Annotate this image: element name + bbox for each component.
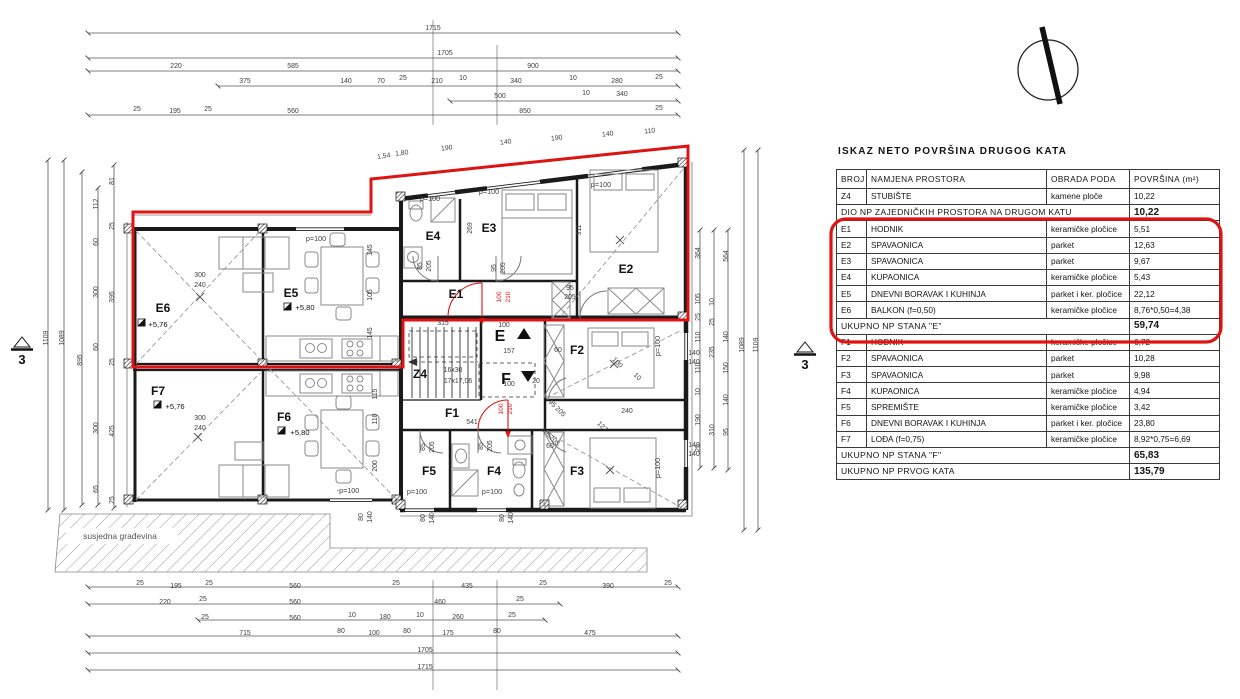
dimension-label: 1715 xyxy=(425,25,440,32)
cell-obrada: keramičke pločice xyxy=(1047,383,1130,399)
dimension-label: 85 xyxy=(478,442,485,450)
cell-namjena: HODNIK xyxy=(867,221,1047,237)
dimension-tick xyxy=(46,158,51,163)
room-label: E6 xyxy=(156,301,171,315)
dimension-label: 10 xyxy=(459,75,467,82)
cell-obrada: keramičke pločice xyxy=(1047,431,1130,447)
dimension-label: 435 xyxy=(461,583,473,590)
cell-namjena: BALKON (f=0,50) xyxy=(867,302,1047,318)
dimension-tick xyxy=(742,148,747,153)
dimension-label: 60 xyxy=(546,443,554,450)
dimension-label: 10 xyxy=(569,75,577,82)
wall-pillar xyxy=(396,500,405,509)
dimension-label: 205 xyxy=(554,405,567,418)
dimension-label: 195 xyxy=(169,108,181,115)
cell-broj: F3 xyxy=(837,367,867,383)
dimension-tick xyxy=(196,618,201,623)
dimension-label: 140 xyxy=(688,359,700,366)
dimension-label: 95 xyxy=(547,399,557,409)
cell-povrsina: 65,83 xyxy=(1130,448,1220,464)
dimension-tick xyxy=(80,503,85,508)
cell-namjena: DNEVNI BORAVAK I KUHINJA xyxy=(867,286,1047,302)
dimension-tick xyxy=(676,31,681,36)
dimension-label: 541 xyxy=(466,419,478,426)
cell-broj: E6 xyxy=(837,302,867,318)
room-label: F5 xyxy=(422,464,436,478)
dimension-label: 110 xyxy=(644,127,656,135)
dimension-label: 375 xyxy=(239,78,251,85)
cell-obrada: keramičke pločice xyxy=(1047,399,1130,415)
door-size-label: 210 xyxy=(507,403,514,414)
dimension-label: 110 xyxy=(695,331,702,342)
dimension-label: 10 xyxy=(348,612,356,619)
dimension-label: 200 xyxy=(372,460,379,472)
cell-obrada: keramičke pločice xyxy=(1047,302,1130,318)
cell-obrada: parket xyxy=(1047,350,1130,366)
dimension-tick xyxy=(86,634,91,639)
table-row: E5DNEVNI BORAVAK I KUHINJAparket i ker. … xyxy=(837,286,1220,302)
dimension-label: 240 xyxy=(621,408,633,415)
dimension-label: 20 xyxy=(532,378,540,385)
dimension-label: 460 xyxy=(434,599,446,606)
cell-broj: E3 xyxy=(837,253,867,269)
cell-povrsina: 9,98 xyxy=(1130,367,1220,383)
dimension-label: 260 xyxy=(452,614,464,621)
dimension-label: 17x17,06 xyxy=(444,378,473,385)
dimension-label: 25 xyxy=(709,318,716,326)
apartment-entry-label: E xyxy=(495,328,506,345)
dimension-tick xyxy=(86,585,91,590)
table-row: E4KUPAONICAkeramičke pločice5,43 xyxy=(837,269,1220,285)
wall-pillar xyxy=(678,158,687,167)
floor-finish-label: -p=100 xyxy=(337,486,360,495)
dimension-label: 190 xyxy=(551,134,563,142)
wall-pillar xyxy=(678,312,687,321)
roof-eave-lines xyxy=(127,147,692,516)
dimension-label: 1109 xyxy=(753,337,760,352)
room-label: F4 xyxy=(487,464,501,478)
cell-namjena: DIO NP ZAJEDNIČKIH PROSTORA NA DRUGOM KA… xyxy=(837,205,1130,221)
dimension-tick xyxy=(726,468,731,473)
dimension-label: 205 xyxy=(487,440,494,452)
dimension-label: 1109 xyxy=(43,330,50,345)
dimension-label: 85 xyxy=(417,262,424,270)
cell-broj: E2 xyxy=(837,237,867,253)
dimension-label: 180 xyxy=(379,614,391,621)
dimension-label: 105 xyxy=(540,426,553,439)
dimension-label: 560 xyxy=(287,108,299,115)
dimension-label: 16x30 xyxy=(444,367,463,374)
walls xyxy=(133,164,686,510)
cell-obrada: parket i ker. pločice xyxy=(1047,415,1130,431)
dimension-label: 220 xyxy=(159,599,171,606)
cell-obrada: keramičke pločice xyxy=(1047,334,1130,350)
dimension-label: 100 xyxy=(611,356,624,369)
dimension-label: 100 xyxy=(498,322,510,329)
dimension-label: 140 xyxy=(429,512,436,524)
room-label: E4 xyxy=(426,229,441,243)
dimension-label: 110 xyxy=(372,413,379,424)
dimension-label: 95 xyxy=(566,285,574,292)
dimension-tick xyxy=(46,508,51,513)
cell-povrsina: 3,42 xyxy=(1130,399,1220,415)
dimension-label: 25 xyxy=(695,313,702,321)
dimension-label: 80 xyxy=(337,628,345,635)
dimension-label: 475 xyxy=(584,630,596,637)
cell-povrsina: 5,51 xyxy=(1130,221,1220,237)
dimension-label: 300 xyxy=(194,415,206,422)
entry-door-f-red xyxy=(478,400,511,438)
col-povrsina: POVRŠINA (m²) xyxy=(1130,170,1220,189)
floor-finish-label: p=100 xyxy=(420,194,440,203)
dimension-label: 205 xyxy=(548,434,561,447)
cell-povrsina: 10,22 xyxy=(1130,189,1220,205)
cell-namjena: HODNIK xyxy=(867,334,1047,350)
dimension-label: 115 xyxy=(372,388,379,399)
door-size-label: 100 xyxy=(498,403,505,414)
dimension-label: 25 xyxy=(109,222,116,230)
dimension-label: 1,54 xyxy=(377,152,391,161)
dimension-label: 850 xyxy=(519,108,531,115)
section-marker-left xyxy=(11,337,33,350)
dimension-tick xyxy=(712,466,717,471)
dimension-label: 95 xyxy=(491,264,498,272)
dimension-label: 140 xyxy=(688,442,700,449)
col-obrada: OBRADA PODA xyxy=(1047,170,1130,189)
floor-finish-label: p=100 xyxy=(653,458,662,478)
dimension-label: 25 xyxy=(508,612,516,619)
dimension-label: 340 xyxy=(616,91,628,98)
dimension-tick xyxy=(676,634,681,639)
plan-labels: E6E5E4E3E2E1Z4F1F2F3F4F5F6F7EF+5,76+5,80… xyxy=(18,25,808,671)
elevation-label: +5,80 xyxy=(290,428,309,437)
dimension-label: 140 xyxy=(340,78,352,85)
neighbor-building xyxy=(55,514,647,572)
dimension-tick xyxy=(448,99,453,104)
dimension-label: 190 xyxy=(441,144,453,152)
col-namjena: NAMJENA PROSTORA xyxy=(867,170,1047,189)
cell-obrada: keramičke pločice xyxy=(1047,221,1130,237)
dimension-label: 80 xyxy=(493,628,501,635)
dimension-tick xyxy=(96,503,101,508)
dimension-label: 564 xyxy=(723,250,730,262)
dimension-tick xyxy=(543,618,548,623)
dimension-tick xyxy=(86,56,91,61)
dimension-label: 895 xyxy=(77,354,84,366)
dimension-label: 10 xyxy=(582,90,590,97)
dimension-label: 300 xyxy=(93,286,100,298)
dimension-label: 80 xyxy=(358,513,365,521)
dimension-label: 900 xyxy=(527,63,539,70)
dimension-label: 105 xyxy=(695,293,702,305)
table-row: Z4STUBIŠTEkamene ploče10,22 xyxy=(837,189,1220,205)
dimension-label: 500 xyxy=(494,93,506,100)
dimension-label: 10 xyxy=(416,612,424,619)
dimension-label: 145 xyxy=(367,327,374,339)
ceiling-diagonals xyxy=(136,168,684,508)
dimension-tick xyxy=(676,668,681,673)
dimension-tick xyxy=(676,113,681,118)
dimension-label: 205 xyxy=(564,294,576,301)
highlight-apartment-e xyxy=(133,146,688,438)
dimension-label: 280 xyxy=(611,78,623,85)
dimension-label: 269 xyxy=(467,222,474,234)
dimension-label: 95 xyxy=(723,428,730,436)
dimension-label: 25 xyxy=(109,496,116,504)
dimension-label: 25 xyxy=(655,105,663,112)
wall-pillars xyxy=(124,158,687,509)
dimension-tick xyxy=(86,69,91,74)
col-broj: BROJ xyxy=(837,170,867,189)
table-row: F1HODNIKkeramičke pločice6,72 xyxy=(837,334,1220,350)
dimension-label: 100 xyxy=(368,630,380,637)
dimension-label: 80 xyxy=(420,514,427,522)
dimension-label: 70 xyxy=(377,78,385,85)
dimension-label: 1705 xyxy=(437,50,452,57)
wall-pillar xyxy=(392,495,401,504)
dimension-label: 140 xyxy=(688,451,700,458)
cell-namjena: LOĐA (f=0,75) xyxy=(867,431,1047,447)
room-label: E3 xyxy=(482,221,497,235)
section-number: 3 xyxy=(801,357,808,372)
dimension-tick xyxy=(112,506,117,511)
dimension-label: 100 xyxy=(503,381,515,388)
cell-broj: E1 xyxy=(837,221,867,237)
room-label: E5 xyxy=(284,286,299,300)
cell-broj: F1 xyxy=(837,334,867,350)
dimension-tick xyxy=(86,668,91,673)
cell-broj: F6 xyxy=(837,415,867,431)
dimension-tick xyxy=(698,466,703,471)
door-size-label: 100 xyxy=(496,291,503,302)
dimension-label: 25 xyxy=(399,75,407,82)
dimension-label: 10 xyxy=(632,372,642,382)
cell-povrsina: 10,28 xyxy=(1130,350,1220,366)
cell-obrada: parket xyxy=(1047,237,1130,253)
dimension-tick xyxy=(756,528,761,533)
elevation-markers xyxy=(138,303,291,434)
dimension-label: 25 xyxy=(655,74,663,81)
dimension-label: 10 xyxy=(695,388,702,396)
dimension-label: 425 xyxy=(109,425,116,437)
cell-povrsina: 22,12 xyxy=(1130,286,1220,302)
cell-namjena: KUPAONICA xyxy=(867,269,1047,285)
dimension-label: 560 xyxy=(289,583,301,590)
dimension-label: 310 xyxy=(709,424,716,436)
dimension-label: 1,80 xyxy=(395,149,409,158)
room-label: F1 xyxy=(445,406,459,420)
dimension-label: 25 xyxy=(664,580,672,587)
table-row: E3SPAVAONICAparket9,67 xyxy=(837,253,1220,269)
dimension-tick xyxy=(112,163,117,168)
dimension-label: 25 xyxy=(133,106,141,113)
cell-povrsina: 10,22 xyxy=(1130,205,1220,221)
dimension-label: 80 xyxy=(403,628,411,635)
table-title: ISKAZ NETO POVRŠINA DRUGOG KATA xyxy=(838,146,1219,157)
staircase xyxy=(408,327,535,398)
cell-broj: F5 xyxy=(837,399,867,415)
dimension-tick xyxy=(712,228,717,233)
wall-pillar xyxy=(124,359,133,368)
entry-door-e-red xyxy=(448,283,485,325)
cell-namjena: SPAVAONICA xyxy=(867,253,1047,269)
wall-pillar xyxy=(258,224,267,233)
cell-povrsina: 6,72 xyxy=(1130,334,1220,350)
wall-pillar xyxy=(124,495,133,504)
dimension-label: 140 xyxy=(508,512,515,524)
table-row: E2SPAVAONICAparket12,63 xyxy=(837,237,1220,253)
dimension-label: 1715 xyxy=(417,664,432,671)
dimension-tick xyxy=(86,651,91,656)
dimension-label: 112 xyxy=(93,198,100,209)
dimension-label: 311 xyxy=(576,224,583,235)
dimension-label: 140 xyxy=(723,394,730,406)
floor-finish-label: p=100 xyxy=(306,234,326,243)
dimension-label: 560 xyxy=(289,615,301,622)
room-label: E2 xyxy=(619,262,634,276)
dimension-tick xyxy=(676,651,681,656)
wall-pillar xyxy=(678,500,687,509)
cell-namjena: STUBIŠTE xyxy=(867,189,1047,205)
dimension-label: 60 xyxy=(93,343,100,351)
section-marker-right xyxy=(794,342,816,355)
dimension-label: 240 xyxy=(194,282,206,289)
table-row: F3SPAVAONICAparket9,98 xyxy=(837,367,1220,383)
dimension-tick xyxy=(756,148,761,153)
section-number: 3 xyxy=(18,352,25,367)
floor-plan-sheet: ISKAZ NETO POVRŠINA DRUGOG KATA BROJ NAM… xyxy=(0,0,1240,699)
dimension-label: 140 xyxy=(688,350,700,357)
cell-broj: F4 xyxy=(837,383,867,399)
table-row: UKUPNO NP STANA "E"59,74 xyxy=(837,318,1220,334)
table-header-row: BROJ NAMJENA PROSTORA OBRADA PODA POVRŠI… xyxy=(837,170,1220,189)
room-label: Z4 xyxy=(413,367,427,381)
table-row: F6DNEVNI BORAVAK I KUHINJAparket i ker. … xyxy=(837,415,1220,431)
dimension-label: 1705 xyxy=(417,647,432,654)
cell-obrada: parket xyxy=(1047,253,1130,269)
dimension-label: 364 xyxy=(695,247,702,259)
dimension-label: 60 xyxy=(554,347,562,354)
dimension-label: 10 xyxy=(709,298,716,306)
dimension-label: 25 xyxy=(539,580,547,587)
dimension-tick xyxy=(742,528,747,533)
entry-markers xyxy=(517,328,535,382)
dimension-label: 315 xyxy=(437,320,449,327)
dimension-label: 25 xyxy=(204,106,212,113)
cell-namjena: DNEVNI BORAVAK I KUHINJA xyxy=(867,415,1047,431)
neighbor-note: susjedna građevina xyxy=(83,531,157,541)
wall-pillar xyxy=(258,359,267,368)
dimension-label: 105 xyxy=(367,289,374,301)
dimension-lines xyxy=(46,20,761,690)
table-row: UKUPNO NP PRVOG KATA135,79 xyxy=(837,464,1220,480)
dimension-label: 85 xyxy=(420,443,427,451)
apartment-entry-label: F xyxy=(501,371,511,388)
dimension-label: 150 xyxy=(723,362,730,374)
dimension-tick xyxy=(86,31,91,36)
dimension-label: 1089 xyxy=(59,330,66,345)
dimension-tick xyxy=(676,99,681,104)
dimension-label: 205 xyxy=(426,260,433,272)
elevation-label: +5,80 xyxy=(295,303,314,312)
floor-finish-label: p=100 xyxy=(591,180,611,189)
dimension-label: 140 xyxy=(500,138,512,146)
dimension-label: 81 xyxy=(109,177,116,185)
dimension-label: 65 xyxy=(93,485,100,493)
dimension-label: 190 xyxy=(695,414,702,426)
table-row: E6BALKON (f=0,50)keramičke pločice8,76*0… xyxy=(837,302,1220,318)
dimension-label: 1089 xyxy=(739,337,746,352)
dimension-label: 205 xyxy=(500,262,507,274)
dimension-label: 210 xyxy=(431,78,443,85)
dimension-label: 300 xyxy=(194,272,206,279)
dimension-label: 25 xyxy=(136,580,144,587)
dimension-label: 140 xyxy=(723,331,730,343)
wall-pillar xyxy=(540,500,549,509)
cell-povrsina: 5,43 xyxy=(1130,269,1220,285)
doors xyxy=(413,256,607,453)
dimension-tick xyxy=(62,158,67,163)
dimension-label: 25 xyxy=(205,580,213,587)
cell-namjena: SPAVAONICA xyxy=(867,350,1047,366)
dimension-label: 25 xyxy=(199,596,207,603)
cell-namjena: UKUPNO NP STANA "E" xyxy=(837,318,1130,334)
cell-namjena: SPAVAONICA xyxy=(867,367,1047,383)
dimension-label: 390 xyxy=(602,583,614,590)
elevation-label: +5,76 xyxy=(165,402,184,411)
cell-namjena: UKUPNO NP STANA "F" xyxy=(837,448,1130,464)
area-table: ISKAZ NETO POVRŠINA DRUGOG KATA BROJ NAM… xyxy=(836,146,1219,480)
dimension-label: 80 xyxy=(499,514,506,522)
cell-broj: F2 xyxy=(837,350,867,366)
table-row: F5SPREMIŠTEkeramičke pločice3,42 xyxy=(837,399,1220,415)
dimension-label: 60 xyxy=(93,238,100,246)
table-row: F7LOĐA (f=0,75)keramičke pločice8,92*0,7… xyxy=(837,431,1220,447)
dimension-label: 127 xyxy=(596,420,609,433)
dimension-tick xyxy=(676,69,681,74)
cell-namjena: SPAVAONICA xyxy=(867,237,1047,253)
dimension-label: 300 xyxy=(93,422,100,434)
dimension-label: 140 xyxy=(602,130,614,138)
dimension-label: 205 xyxy=(429,441,436,453)
dimension-tick xyxy=(676,84,681,89)
areas-table: BROJ NAMJENA PROSTORA OBRADA PODA POVRŠI… xyxy=(836,169,1220,480)
dimension-label: 240 xyxy=(194,425,206,432)
dimension-tick xyxy=(86,113,91,118)
dimension-label: 25 xyxy=(516,596,524,603)
table-row: UKUPNO NP STANA "F"65,83 xyxy=(837,448,1220,464)
cell-obrada: keramičke pločice xyxy=(1047,269,1130,285)
dimension-label: 195 xyxy=(170,583,182,590)
wall-pillar xyxy=(258,495,267,504)
dimension-label: 145 xyxy=(367,244,374,256)
dimension-label: 25 xyxy=(109,358,116,366)
room-label: F7 xyxy=(151,384,165,398)
dimension-tick xyxy=(676,585,681,590)
dimension-tick xyxy=(86,602,91,607)
cell-namjena: KUPAONICA xyxy=(867,383,1047,399)
cell-namjena: SPREMIŠTE xyxy=(867,399,1047,415)
dimension-label: 110 xyxy=(695,362,702,373)
windows xyxy=(296,168,687,511)
table-row: E1HODNIKkeramičke pločice5,51 xyxy=(837,221,1220,237)
dimension-label: 715 xyxy=(239,630,251,637)
dimension-label: 157 xyxy=(503,348,515,355)
dimension-tick xyxy=(726,228,731,233)
dimension-label: 25 xyxy=(392,580,400,587)
dimension-label: 560 xyxy=(289,599,301,606)
dimension-tick xyxy=(558,602,563,607)
